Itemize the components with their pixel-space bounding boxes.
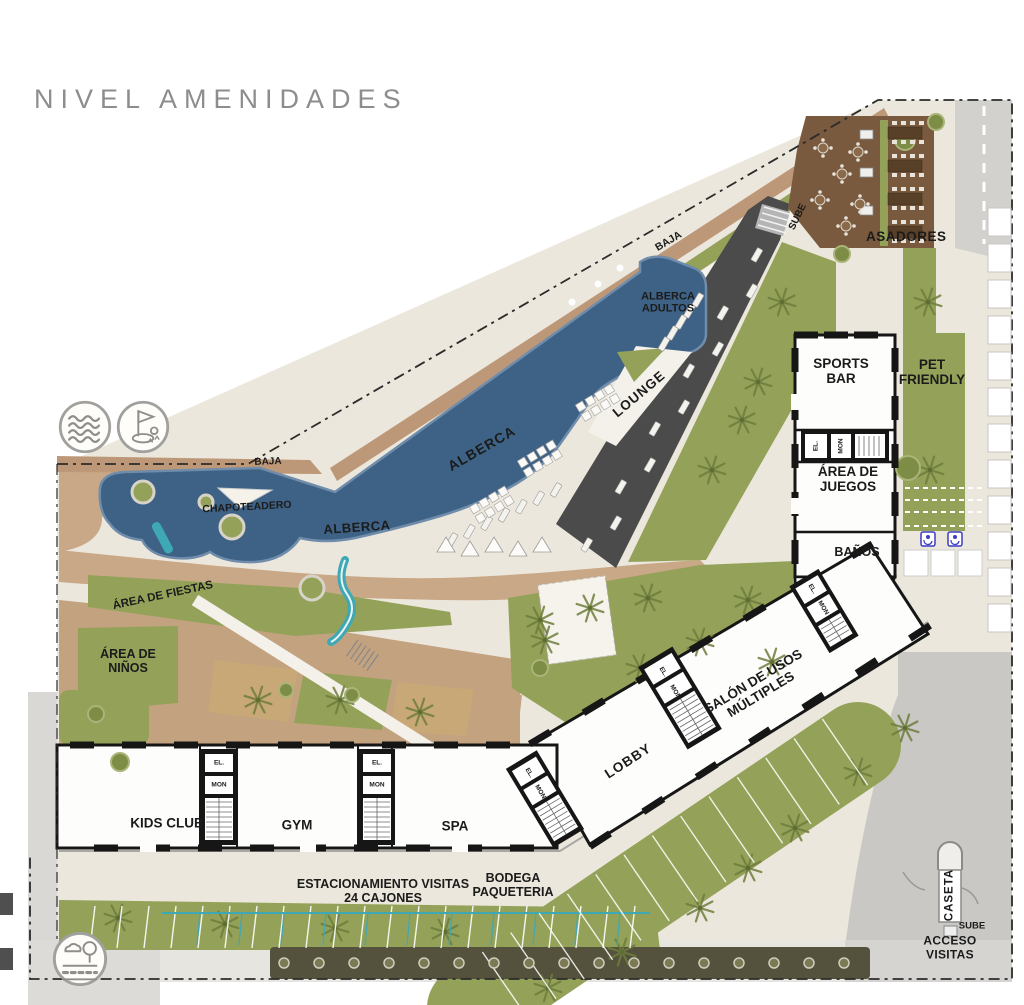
label-area-de-juegos: ÁREA DE JUEGOS [818,464,878,495]
label-kids-club: KIDS CLUB [130,815,204,830]
label-lobby: LOBBY [602,740,654,781]
label-sube-lower: SUBE [959,922,985,933]
montacargas-label: MON [533,784,547,801]
waves-icon [57,399,113,460]
label-alberca-adultos: ALBERCA ADULTOS [641,291,695,316]
label-caseta: CASETA [944,869,957,921]
elevator-label: EL. [214,759,224,766]
label-pet-friendly: PET FRIENDLY [899,357,965,388]
label-estacionamiento: ESTACIONAMIENTO VISITAS 24 CAJONES [297,877,469,905]
label-acceso-visitas: ACCESO VISITAS [913,934,987,961]
label-baja-west: BAJA [254,456,282,468]
elevator-label: EL. [372,759,382,766]
label-asadores: ASADORES [866,229,947,244]
amenities-floor-plan: NIVEL AMENIDADES BAJA SUBE ASADORES ALBE… [0,0,1024,1005]
road-landscape-icon [51,930,109,993]
plan-title: NIVEL AMENIDADES [34,84,408,115]
label-sube-upper: SUBE [787,202,809,232]
elevator-label: EL. [812,441,819,451]
montacargas-label: MON [211,781,226,788]
label-chapoteadero: CHAPOTEADERO [202,500,292,517]
label-bodega: BODEGA PAQUETERIA [472,871,553,899]
montacargas-label: MON [369,781,384,788]
label-spa: SPA [442,818,469,833]
label-alberca-lower: ALBERCA [323,518,391,537]
label-baja-upper: BAJA [654,230,685,255]
label-area-de-ninos: ÁREA DE NIÑOS [100,647,156,675]
golf-flag-icon [115,399,171,460]
elevator-label: EL. [523,767,535,779]
label-sports-bar: SPORTS BAR [813,356,869,387]
label-lounge: LOUNGE [610,368,669,421]
elevator-label: EL. [806,583,818,595]
elevator-label: EL. [657,666,669,678]
montacargas-label: MON [668,684,682,701]
label-salon-usos-multiples: SALÓN DE USOS MÚLTIPLES [701,646,813,730]
label-alberca-upper: ALBERCA [445,423,518,474]
montacargas-label: MON [837,438,844,453]
montacargas-label: MON [816,600,830,617]
labels-overlay: NIVEL AMENIDADES BAJA SUBE ASADORES ALBE… [0,0,1024,1005]
label-banos: BAÑOS [834,545,879,559]
label-area-de-fiestas: ÁREA DE FIESTAS [112,579,215,613]
label-gym: GYM [282,817,313,832]
